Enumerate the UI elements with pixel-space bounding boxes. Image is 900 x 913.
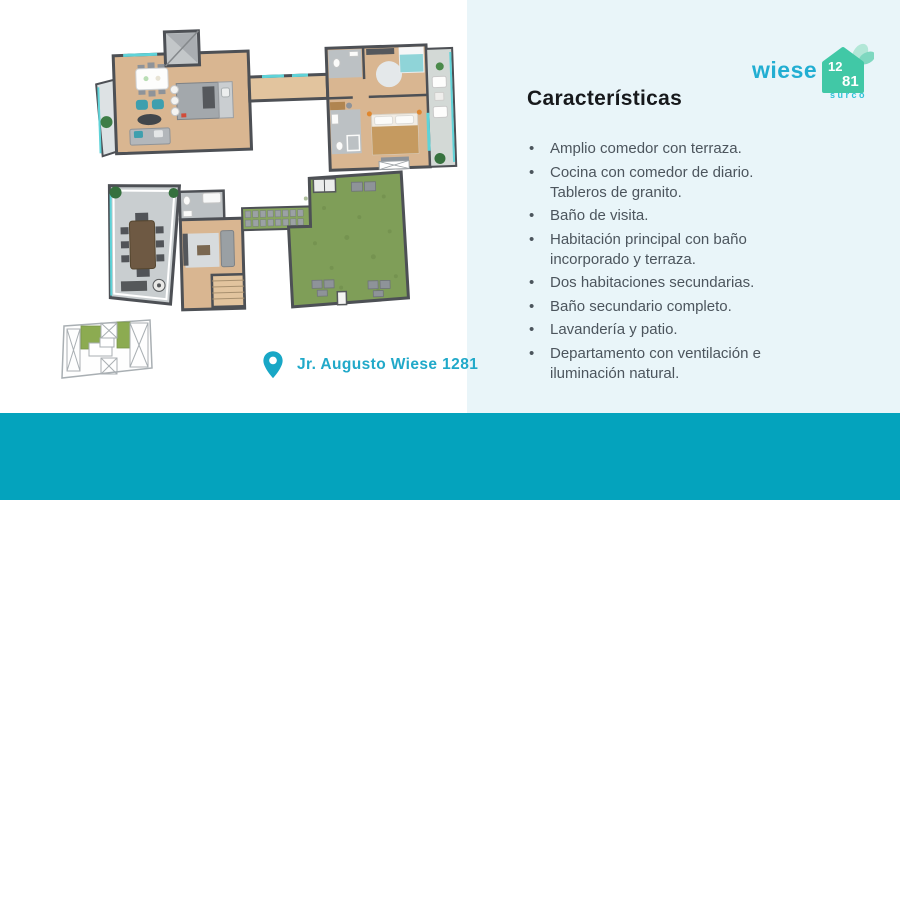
feature-text: Cocina con comedor de diario. Tableros d… <box>550 163 753 203</box>
list-item: •Cocina con comedor de diario. Tableros … <box>529 163 829 203</box>
key-plan <box>58 316 158 386</box>
list-item: •Amplio comedor con terraza. <box>529 139 829 159</box>
brand-district: surco <box>830 90 867 100</box>
bullet-icon: • <box>529 344 550 384</box>
dining-table <box>135 62 168 97</box>
map-pin-icon <box>262 350 284 380</box>
feature-text: Baño de visita. <box>550 206 648 226</box>
brand-name: wiese <box>752 59 817 82</box>
feature-text: Amplio comedor con terraza. <box>550 139 742 159</box>
address-text: Jr. Augusto Wiese 1281 <box>297 356 478 374</box>
unit-description: Duplex de 3 dormitorios + estar <box>45 863 426 892</box>
floor-plan-level-2 <box>85 170 415 320</box>
list-item: •Baño de visita. <box>529 206 829 226</box>
area-stats: Área Techada 121m2 Área Total 189m2 Área… <box>548 826 884 913</box>
stairs <box>212 274 245 307</box>
kitchen-island <box>170 82 219 120</box>
feature-text: Departamento con ventilación e iluminaci… <box>550 344 761 384</box>
bullet-icon: • <box>529 273 550 293</box>
bullet-icon: • <box>529 139 550 159</box>
garden-door <box>337 291 346 304</box>
bullet-icon: • <box>529 297 550 317</box>
area-total: Área Total 189m2 <box>660 826 772 913</box>
feature-text: Lavandería y patio. <box>550 320 678 340</box>
bullet-icon: • <box>529 320 550 340</box>
location-row: Jr. Augusto Wiese 1281 <box>262 350 478 380</box>
list-item: •Baño secundario completo. <box>529 297 829 317</box>
bullet-icon: • <box>529 163 550 203</box>
house-number-top: 12 <box>828 59 842 74</box>
house-number-bottom: 81 <box>842 73 859 90</box>
kitchen-counter <box>218 82 233 118</box>
list-item: •Dos habitaciones secundarias. <box>529 273 829 293</box>
feature-text: Habitación principal con baño incorporad… <box>550 230 747 270</box>
area-value: 68m2 <box>806 872 849 889</box>
area-value: 121m2 <box>578 872 631 889</box>
area-libre: Área Libre 68m2 <box>772 826 884 913</box>
bullet-icon: • <box>529 230 550 270</box>
lawn-garden <box>287 172 408 307</box>
list-item: •Departamento con ventilación e iluminac… <box>529 344 829 384</box>
area-label: Área Total <box>683 850 749 865</box>
corridor-floor <box>249 74 328 101</box>
bathroom-secondary <box>330 109 362 154</box>
feature-text: Baño secundario completo. <box>550 297 732 317</box>
bathroom <box>180 191 225 220</box>
feature-text: Dos habitaciones secundarias. <box>550 273 754 293</box>
bullet-icon: • <box>529 206 550 226</box>
features-title: Características <box>527 87 682 111</box>
area-techada: Área Techada 121m2 <box>548 826 660 913</box>
stair-shaft <box>164 31 199 66</box>
area-label: Área Techada <box>560 850 648 865</box>
closet-hatch <box>379 161 409 170</box>
unit-number: DPTO 601 <box>45 837 152 861</box>
window-accent <box>292 74 308 78</box>
list-item: •Habitación principal con baño incorpora… <box>529 230 829 270</box>
flyer-page: wiese 12 81 surco Características •Ampli… <box>0 0 900 500</box>
area-value: 189m2 <box>690 872 743 889</box>
area-label: Área Libre <box>794 850 861 865</box>
footer-bar: DPTO 601 Duplex de 3 dormitorios + estar… <box>0 413 900 500</box>
bathroom-visita <box>328 49 362 78</box>
list-item: •Lavandería y patio. <box>529 320 829 340</box>
sofa <box>130 128 171 145</box>
floor-plan-level-1 <box>85 20 475 185</box>
features-list: •Amplio comedor con terraza. •Cocina con… <box>529 139 829 387</box>
